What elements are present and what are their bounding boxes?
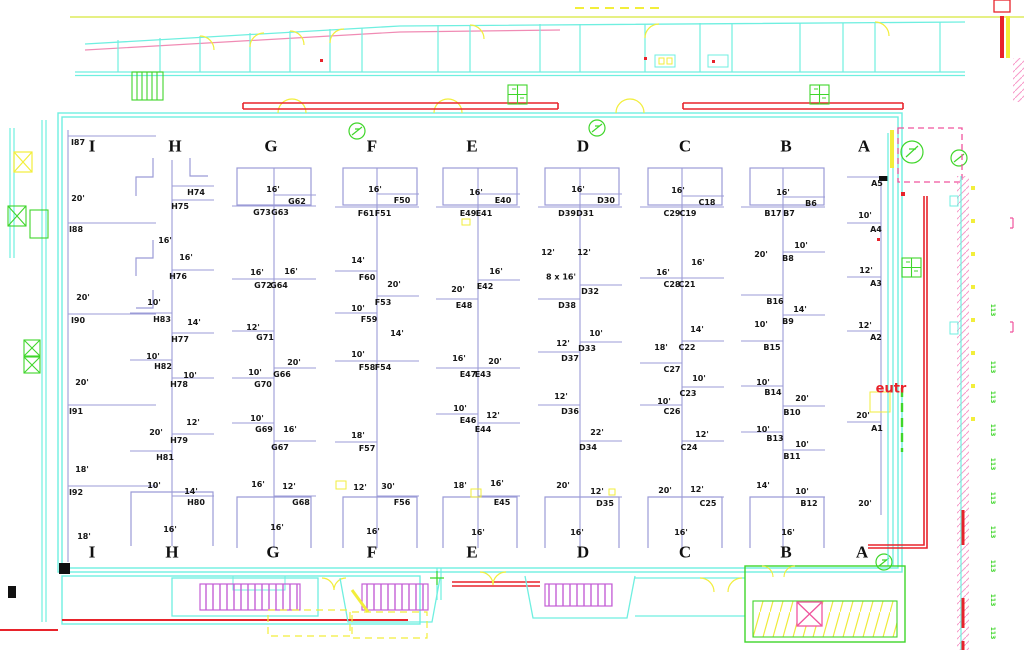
yellow-dots	[971, 186, 975, 421]
green-circle-symbols	[349, 120, 967, 570]
escalator-2	[362, 584, 428, 610]
door-arcs-top	[200, 22, 889, 113]
hall-outline	[58, 113, 902, 572]
yellow-x-box	[14, 152, 32, 172]
hatched-wall	[957, 176, 969, 650]
stair-hatch	[132, 72, 163, 100]
room-dividers	[118, 22, 940, 72]
top-right-bars	[994, 0, 1024, 102]
top-corridor	[70, 8, 1024, 113]
elevator-symbols	[508, 85, 921, 277]
a-bay-wall	[888, 133, 893, 566]
escalator-3	[545, 584, 612, 606]
floor-plan-drawing	[0, 0, 1024, 650]
red-walls-top	[243, 103, 903, 109]
floor-plan-canvas: IHGFEDCBAIHGFEDCBAI87I88I90I91I92H74H75H…	[0, 0, 1024, 650]
small-markers	[59, 176, 905, 574]
escalator-1	[200, 584, 300, 610]
hall-symbols	[59, 85, 967, 574]
right-wall	[898, 0, 1024, 650]
top-fixtures	[320, 55, 728, 67]
bottom-right-structure	[745, 566, 905, 642]
left-side	[0, 120, 58, 630]
bottom-corridor	[62, 566, 905, 642]
